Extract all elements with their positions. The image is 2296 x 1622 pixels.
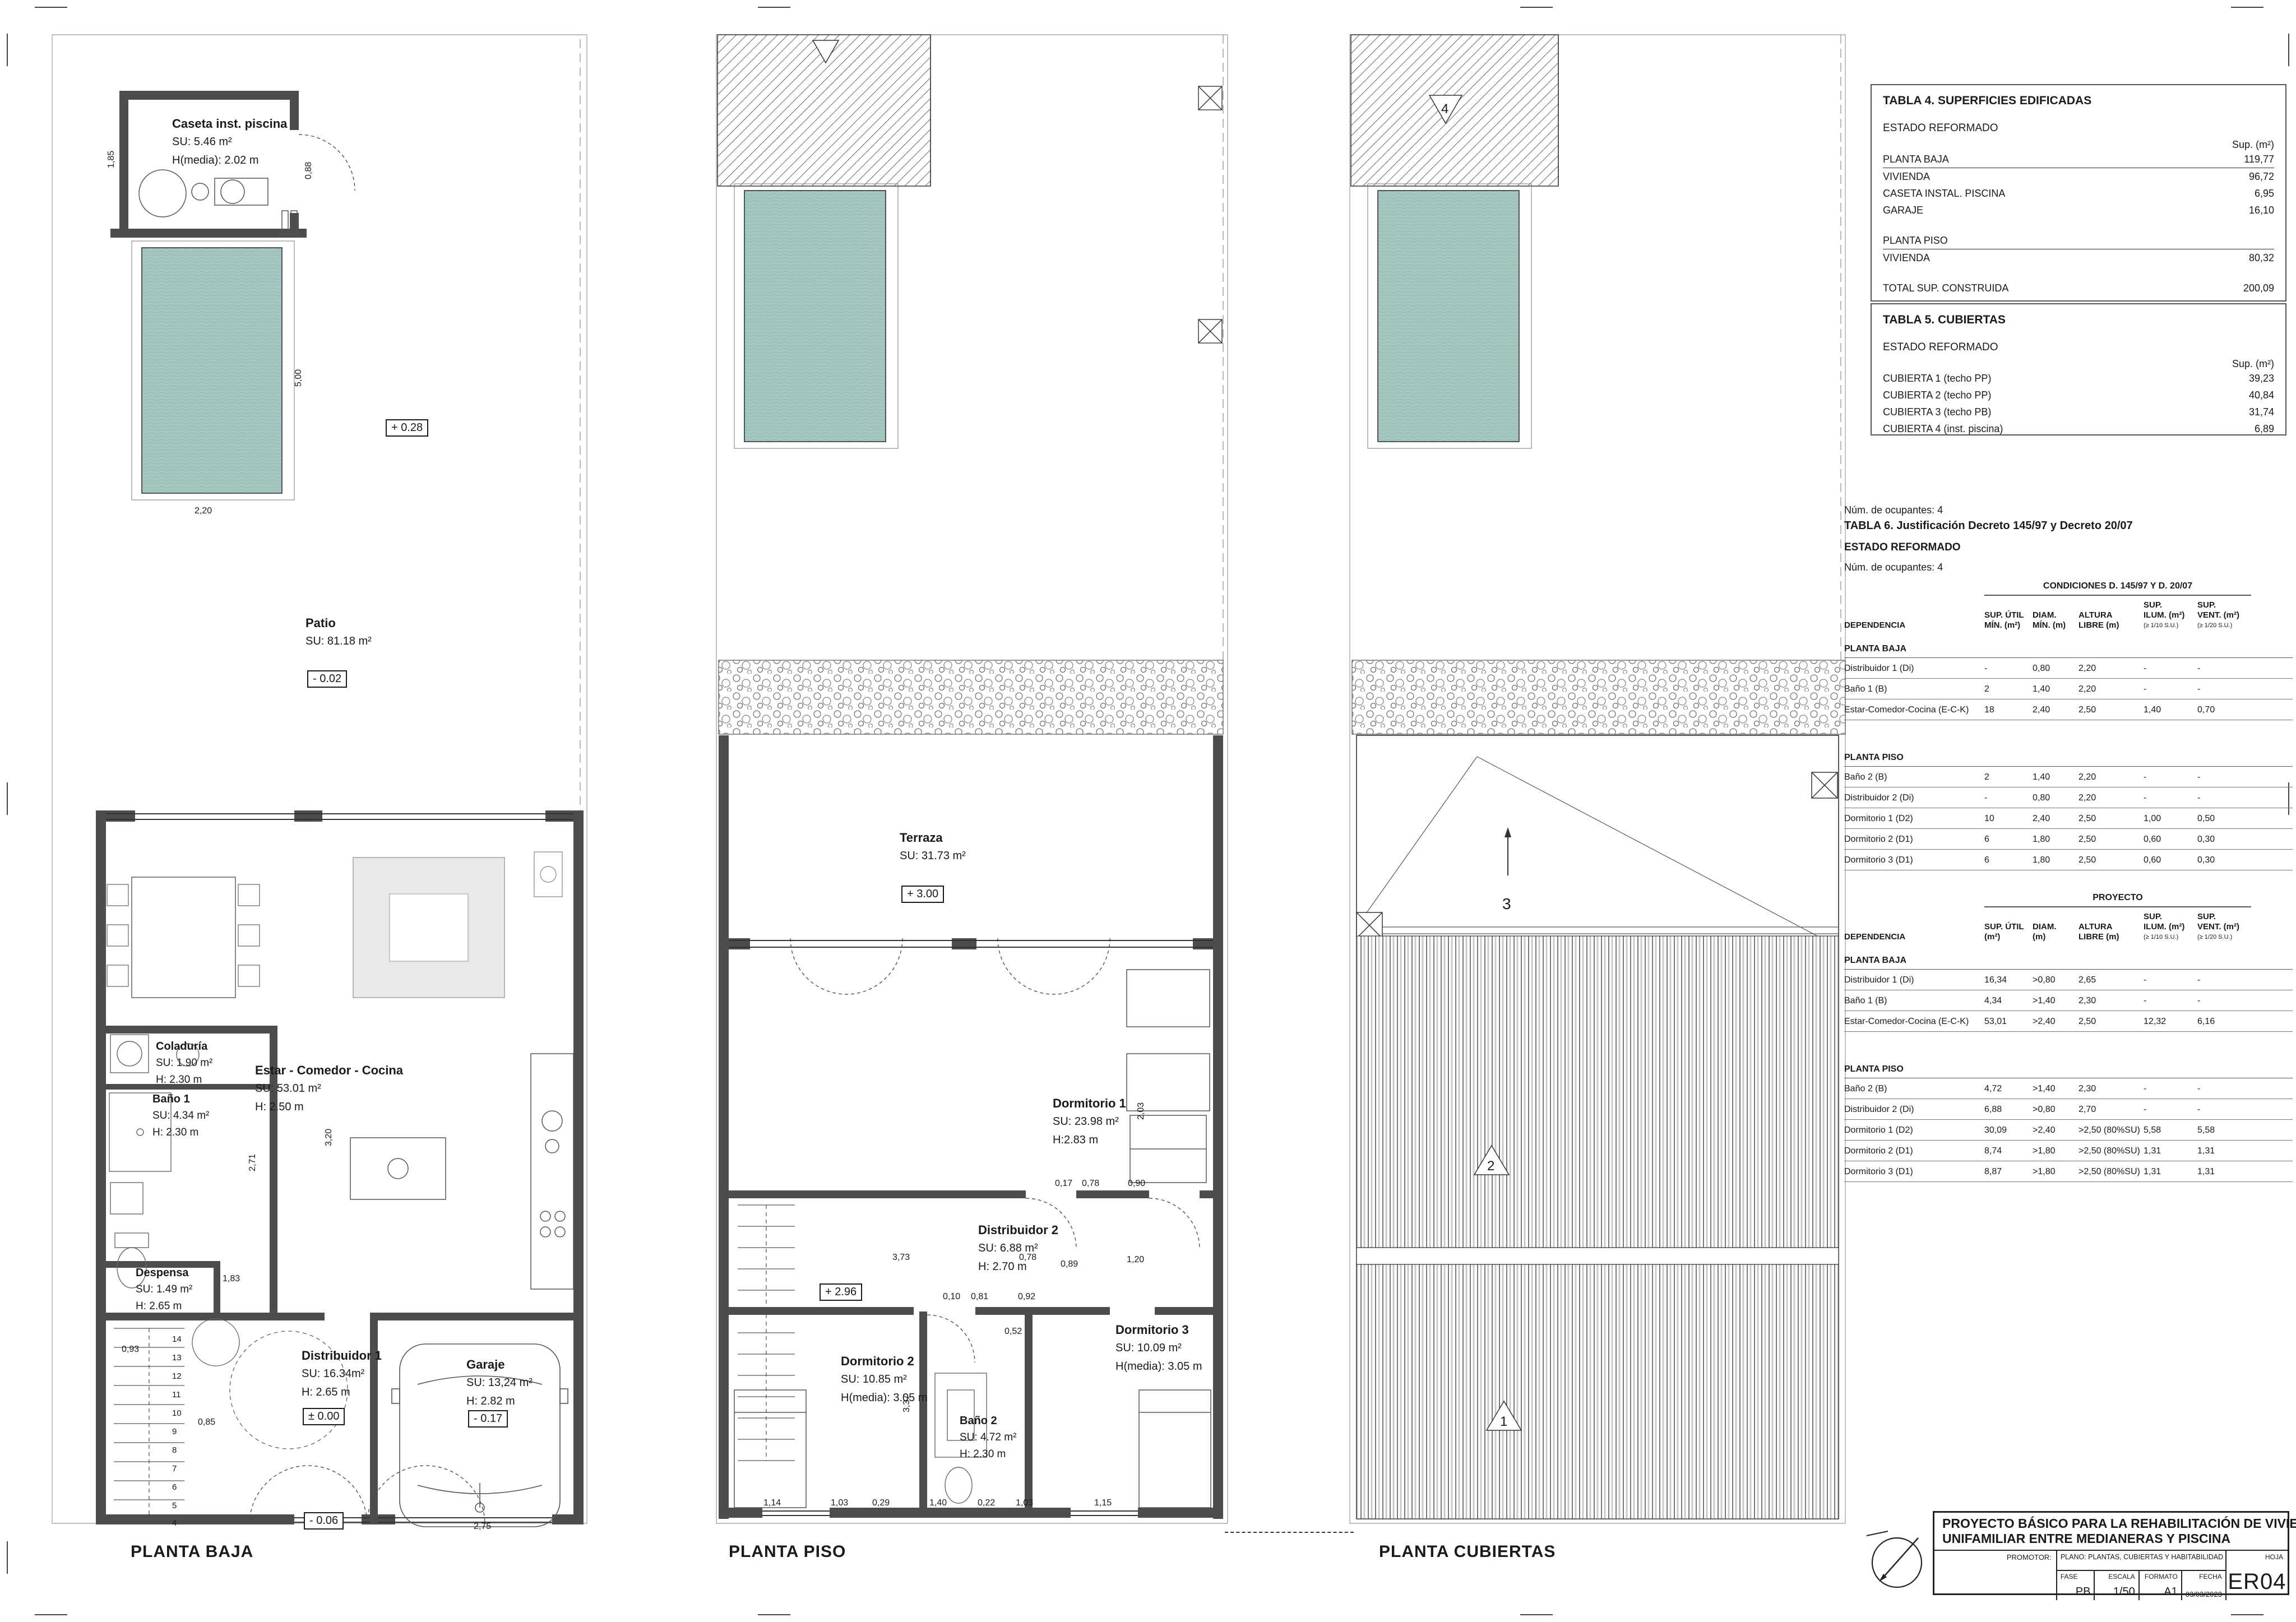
- table-row: Estar-Comedor-Cocina (E-C-K)18 2,402,50 …: [1844, 699, 2293, 720]
- svg-text:2,20: 2,20: [195, 506, 212, 516]
- table-row: Dormitorio 3 (D1)8,87 >1,80>2,50 (80%SU)…: [1844, 1161, 2293, 1182]
- table5-rows: CUBIERTA 1 (techo PP) 39,23 CUBIERTA 2 (…: [1883, 370, 2274, 437]
- promotor-cell: PROMOTOR:: [1934, 1551, 2057, 1600]
- stair-numbers: 14 13 12 11 10 9 8 7 6 5 4: [172, 1334, 182, 1528]
- sheet-code: ER04: [2226, 1563, 2288, 1600]
- svg-text:10: 10: [172, 1408, 182, 1418]
- room-label-despensa: Despensa SU: 1.49 m² H: 2.65 m: [136, 1264, 192, 1315]
- formato-cell: FORMATO A1: [2140, 1571, 2182, 1600]
- svg-text:5: 5: [172, 1501, 177, 1510]
- table4-title: TABLA 4. SUPERFICIES EDIFICADAS: [1883, 94, 2274, 108]
- svg-text:0,88: 0,88: [304, 162, 313, 179]
- table-row: Distribuidor 2 (Di)- 0,802,20 --: [1844, 787, 2293, 808]
- room-label-dormitorio1: Dormitorio 1 SU: 23.98 m² H:2.83 m: [1053, 1094, 1126, 1150]
- table6-state: ESTADO REFORMADO: [1844, 541, 2293, 554]
- level-marker: ± 0.00: [303, 1408, 345, 1425]
- dining-set: [107, 877, 260, 998]
- table4-state: ESTADO REFORMADO: [1883, 122, 2274, 135]
- swimming-pool: [142, 248, 282, 493]
- terrace-glazing: [719, 938, 1223, 994]
- fecha-cell: FECHA 03/03/2023: [2182, 1571, 2225, 1600]
- svg-text:1,83: 1,83: [223, 1274, 240, 1283]
- sofa: [353, 852, 562, 998]
- proy-pp-rows: Baño 2 (B)4,72 >1,402,30 -- Distribuidor…: [1844, 1078, 2293, 1182]
- swimming-pool: [744, 191, 886, 442]
- table-row: CUBIERTA 3 (techo PB) 31,74: [1883, 404, 2274, 420]
- table-row: Distribuidor 1 (Di)16,34 >0,802,65 --: [1844, 970, 2293, 990]
- svg-text:8: 8: [172, 1445, 177, 1455]
- svg-text:3,73: 3,73: [892, 1253, 910, 1262]
- swimming-pool: [1378, 191, 1519, 442]
- table6-proy-group: PROYECTO: [1844, 893, 2293, 907]
- table-row: CUBIERTA 4 (inst. piscina) 6,89: [1883, 420, 2274, 437]
- table-row: CASETA INSTAL. PISCINA 6,95: [1883, 185, 2274, 202]
- door-swing-arc: [927, 1315, 975, 1363]
- turning-circle-small: [192, 1319, 239, 1366]
- room-label-terraza: Terraza SU: 31.73 m²: [900, 828, 966, 865]
- svg-text:0,29: 0,29: [872, 1498, 890, 1508]
- table-row: Baño 2 (B)2 1,402,20 --: [1844, 767, 2293, 787]
- room-label-garaje: Garaje SU: 13,24 m² H: 2.82 m: [466, 1355, 533, 1411]
- table4-unit-header: Sup. (m²): [1883, 139, 2274, 151]
- table-justificacion: Núm. de ocupantes: 4 TABLA 6. Justificac…: [1844, 504, 2293, 1182]
- reg-mark: [2231, 7, 2263, 8]
- plan-title-planta-cubiertas: PLANTA CUBIERTAS: [1379, 1542, 1556, 1561]
- reg-mark: [7, 782, 8, 815]
- roof-number-2: 2: [1487, 1158, 1494, 1174]
- reg-mark: [7, 34, 8, 66]
- proy-group-header: PROYECTO: [1984, 893, 2251, 907]
- table-row: Dormitorio 2 (D1)6 1,802,50 0,600,30: [1844, 829, 2293, 850]
- svg-text:0,17: 0,17: [1055, 1179, 1072, 1188]
- table6-cond-group: CONDICIONES D. 145/97 Y D. 20/07: [1844, 581, 2293, 596]
- table-row: Dormitorio 1 (D2)10 2,402,50 1,000,50: [1844, 808, 2293, 829]
- pool-equipment: [139, 170, 297, 234]
- terrace-walls: [719, 735, 1223, 1519]
- boundary-dash-line: [1225, 1532, 1354, 1533]
- svg-text:4: 4: [172, 1518, 177, 1528]
- room-label-dormitorio2: Dormitorio 2 SU: 10.85 m² H(media): 3.05…: [841, 1352, 928, 1407]
- table-row: CUBIERTA 1 (techo PP) 39,23: [1883, 370, 2274, 387]
- occupants-line: Núm. de ocupantes: 4: [1844, 504, 2293, 516]
- reg-mark: [2231, 1614, 2263, 1615]
- hoja-cell: HOJA ER04: [2225, 1551, 2288, 1600]
- table-row: Baño 1 (B)4,34 >1,402,30 --: [1844, 990, 2293, 1011]
- svg-text:0,52: 0,52: [1004, 1327, 1022, 1336]
- svg-text:1,03: 1,03: [1016, 1498, 1033, 1508]
- reg-mark: [758, 1614, 790, 1615]
- svg-text:0,89: 0,89: [1061, 1259, 1078, 1269]
- table5-unit-header: Sup. (m²): [1883, 358, 2274, 370]
- reg-mark: [1520, 1614, 1553, 1615]
- room-label-bano2: Baño 2 SU: 4.72 m² H: 2.30 m: [960, 1412, 1016, 1463]
- room-label-patio: Patio SU: 81.18 m²: [305, 614, 372, 651]
- cond-pb-rows: Distribuidor 1 (Di)- 0,802,20 -- Baño 1 …: [1844, 658, 2293, 720]
- svg-text:3,20: 3,20: [324, 1129, 334, 1146]
- title-block: PROYECTO BÁSICO PARA LA REHABILITACIÓN D…: [1933, 1511, 2289, 1595]
- caseta-roof-hatch: [1351, 35, 1558, 186]
- svg-text:0,90: 0,90: [1128, 1179, 1145, 1188]
- svg-text:11: 11: [172, 1390, 181, 1399]
- level-marker: - 0.06: [304, 1512, 344, 1530]
- svg-text:0,10: 0,10: [943, 1292, 960, 1301]
- level-marker: - 0.02: [307, 670, 347, 688]
- roof-number-3: 3: [1502, 895, 1511, 912]
- room-label-dormitorio3: Dormitorio 3 SU: 10.09 m² H(media): 3.05…: [1115, 1320, 1202, 1376]
- table-row: Dormitorio 2 (D1)8,74 >1,80>2,50 (80%SU)…: [1844, 1141, 2293, 1161]
- level-marker: + 2.96: [820, 1283, 862, 1301]
- kitchen-counter: [531, 1054, 573, 1289]
- reg-mark: [1520, 7, 1553, 8]
- table-row: Distribuidor 2 (Di)6,88 >0,802,70 --: [1844, 1099, 2293, 1120]
- table-superficies-edificadas: TABLA 4. SUPERFICIES EDIFICADAS ESTADO R…: [1871, 84, 2286, 302]
- table-row: PLANTA BAJA 119,77: [1883, 151, 2274, 168]
- svg-text:7: 7: [172, 1464, 177, 1473]
- svg-text:6: 6: [172, 1482, 177, 1492]
- table-row: VIVIENDA 80,32: [1883, 249, 2274, 266]
- table-row: Baño 2 (B)4,72 >1,402,30 --: [1844, 1078, 2293, 1099]
- plan-title-planta-piso: PLANTA PISO: [729, 1542, 846, 1561]
- table-row: GARAJE 16,10: [1883, 202, 2274, 219]
- floor-plan-planta-baja: 14 13 12 11 10 9 8 7 6 5 4: [48, 28, 600, 1530]
- table-row: Distribuidor 1 (Di)- 0,802,20 --: [1844, 658, 2293, 679]
- svg-text:14: 14: [172, 1334, 182, 1344]
- table-row: Estar-Comedor-Cocina (E-C-K)53,01 >2,402…: [1844, 1011, 2293, 1032]
- section-planta-piso: PLANTA PISO: [1844, 745, 2293, 767]
- north-compass: [1862, 1526, 1932, 1595]
- reg-mark: [7, 1541, 8, 1574]
- table-row: Baño 1 (B)2 1,402,20 --: [1844, 679, 2293, 699]
- staircase: [738, 1205, 795, 1461]
- room-label-distribuidor1: Distribuidor 1 SU: 16.34m² H: 2.65 m: [302, 1346, 382, 1402]
- drawing-sheet: 14 13 12 11 10 9 8 7 6 5 4: [0, 0, 2296, 1622]
- kitchen-island: [350, 1138, 446, 1199]
- level-marker: + 0.28: [386, 419, 428, 437]
- table-row: Dormitorio 1 (D2)30,09 >2,40>2,50 (80%SU…: [1844, 1120, 2293, 1141]
- table-row: VIVIENDA 96,72: [1883, 168, 2274, 185]
- svg-text:0,93: 0,93: [122, 1345, 139, 1354]
- svg-text:0,22: 0,22: [978, 1498, 995, 1508]
- table-row: PLANTA PISO: [1883, 232, 2274, 249]
- escala-cell: ESCALA 1/50: [2095, 1571, 2139, 1600]
- reg-mark: [35, 1614, 67, 1615]
- room-label-distribuidor2: Distribuidor 2 SU: 6.88 m² H: 2.70 m: [978, 1221, 1058, 1276]
- svg-text:2,71: 2,71: [248, 1154, 257, 1171]
- svg-text:12: 12: [172, 1371, 182, 1381]
- section-planta-baja: PLANTA BAJA: [1844, 948, 2293, 970]
- table5-state: ESTADO REFORMADO: [1883, 341, 2274, 354]
- roof-number-1: 1: [1500, 1414, 1507, 1429]
- metal-roof-1: [1357, 1264, 1839, 1519]
- svg-text:1,14: 1,14: [763, 1498, 781, 1508]
- proy-pb-rows: Distribuidor 1 (Di)16,34 >0,802,65 -- Ba…: [1844, 970, 2293, 1032]
- svg-text:1,15: 1,15: [1094, 1498, 1112, 1508]
- level-marker: + 3.00: [901, 886, 944, 903]
- plan-title-planta-baja: PLANTA BAJA: [131, 1542, 253, 1561]
- svg-text:1,40: 1,40: [929, 1498, 947, 1508]
- occupants-line: Núm. de ocupantes: 4: [1844, 562, 2293, 573]
- reg-mark: [758, 7, 790, 8]
- cond-pp-rows: Baño 2 (B)2 1,402,20 -- Distribuidor 2 (…: [1844, 767, 2293, 870]
- axis-markers: [1198, 86, 1222, 343]
- fase-cell: FASE PB: [2057, 1571, 2095, 1600]
- svg-text:0,81: 0,81: [971, 1292, 988, 1301]
- roof-number-4: 4: [1441, 101, 1448, 117]
- metal-roof-2: [1357, 936, 1839, 1248]
- svg-text:13: 13: [172, 1353, 182, 1363]
- partition-dorm1: [729, 1190, 1220, 1198]
- vegetation-band: [1352, 660, 1845, 734]
- bedroom1-furniture: [1127, 970, 1210, 1183]
- room-label-bano1: Baño 1 SU: 4.34 m² H: 2.30 m: [152, 1091, 209, 1141]
- section-planta-piso: PLANTA PISO: [1844, 1056, 2293, 1078]
- level-marker: - 0.17: [468, 1410, 508, 1428]
- table5-title: TABLA 5. CUBIERTAS: [1883, 313, 2274, 327]
- roof-plan-planta-cubiertas: 4 3 2 1: [1345, 28, 1850, 1530]
- table6-title: TABLA 6. Justificación Decreto 145/97 y …: [1844, 520, 2293, 532]
- svg-text:0,92: 0,92: [1018, 1292, 1035, 1301]
- room-label-coladuria: Coladuría SU: 1.90 m² H: 2.30 m: [156, 1038, 212, 1088]
- table-row: CUBIERTA 2 (techo PP) 40,84: [1883, 387, 2274, 404]
- svg-text:2,75: 2,75: [474, 1522, 491, 1530]
- bottom-wall: [729, 1508, 1220, 1518]
- svg-text:1,85: 1,85: [107, 151, 116, 168]
- svg-text:9: 9: [172, 1427, 177, 1436]
- svg-text:1,03: 1,03: [831, 1498, 848, 1508]
- plano-cell: PLANO: PLANTAS, CUBIERTAS Y HABITABILIDA…: [2057, 1551, 2225, 1571]
- room-label-estar: Estar - Comedor - Cocina SU: 53.01 m² H:…: [255, 1061, 403, 1116]
- svg-text:1,20: 1,20: [1127, 1255, 1144, 1264]
- floor-plan-planta-piso: 3,73 0,78 0,89 1,20 0,10 0,81 0,92 0,52 …: [712, 28, 1233, 1530]
- table6-proy-headers: DEPENDENCIA SUP. ÚTIL (m²) DIAM. (m) ALT…: [1844, 907, 2293, 942]
- table-cubiertas: TABLA 5. CUBIERTAS ESTADO REFORMADO Sup.…: [1871, 303, 2286, 435]
- svg-text:0,85: 0,85: [198, 1417, 215, 1427]
- svg-text:5,00: 5,00: [294, 369, 303, 387]
- table-row: TOTAL SUP. CONSTRUIDA 200,09: [1883, 280, 2274, 296]
- cond-group-header: CONDICIONES D. 145/97 Y D. 20/07: [1984, 581, 2251, 596]
- dimension-labels: 3,73 0,78 0,89 1,20 0,10 0,81 0,92 0,52 …: [763, 1102, 1146, 1508]
- room-label-caseta: Caseta inst. piscina SU: 5.46 m² H(media…: [172, 114, 287, 170]
- project-title: PROYECTO BÁSICO PARA LA REHABILITACIÓN D…: [1934, 1513, 2288, 1551]
- table6-cond-headers: DEPENDENCIA SUP. ÚTIL MÍN. (m²) DIAM. MÍ…: [1844, 596, 2293, 631]
- svg-text:0,78: 0,78: [1082, 1179, 1099, 1188]
- vegetation-band: [719, 660, 1223, 734]
- svg-text:2,03: 2,03: [1136, 1102, 1146, 1120]
- table-row: Dormitorio 3 (D1)6 1,802,50 0,600,30: [1844, 850, 2293, 870]
- reg-mark: [35, 7, 67, 8]
- reg-mark: [2288, 34, 2289, 66]
- ridge-band: [1357, 1248, 1839, 1264]
- section-planta-baja: PLANTA BAJA: [1844, 636, 2293, 658]
- plot-boundary: [52, 35, 587, 1523]
